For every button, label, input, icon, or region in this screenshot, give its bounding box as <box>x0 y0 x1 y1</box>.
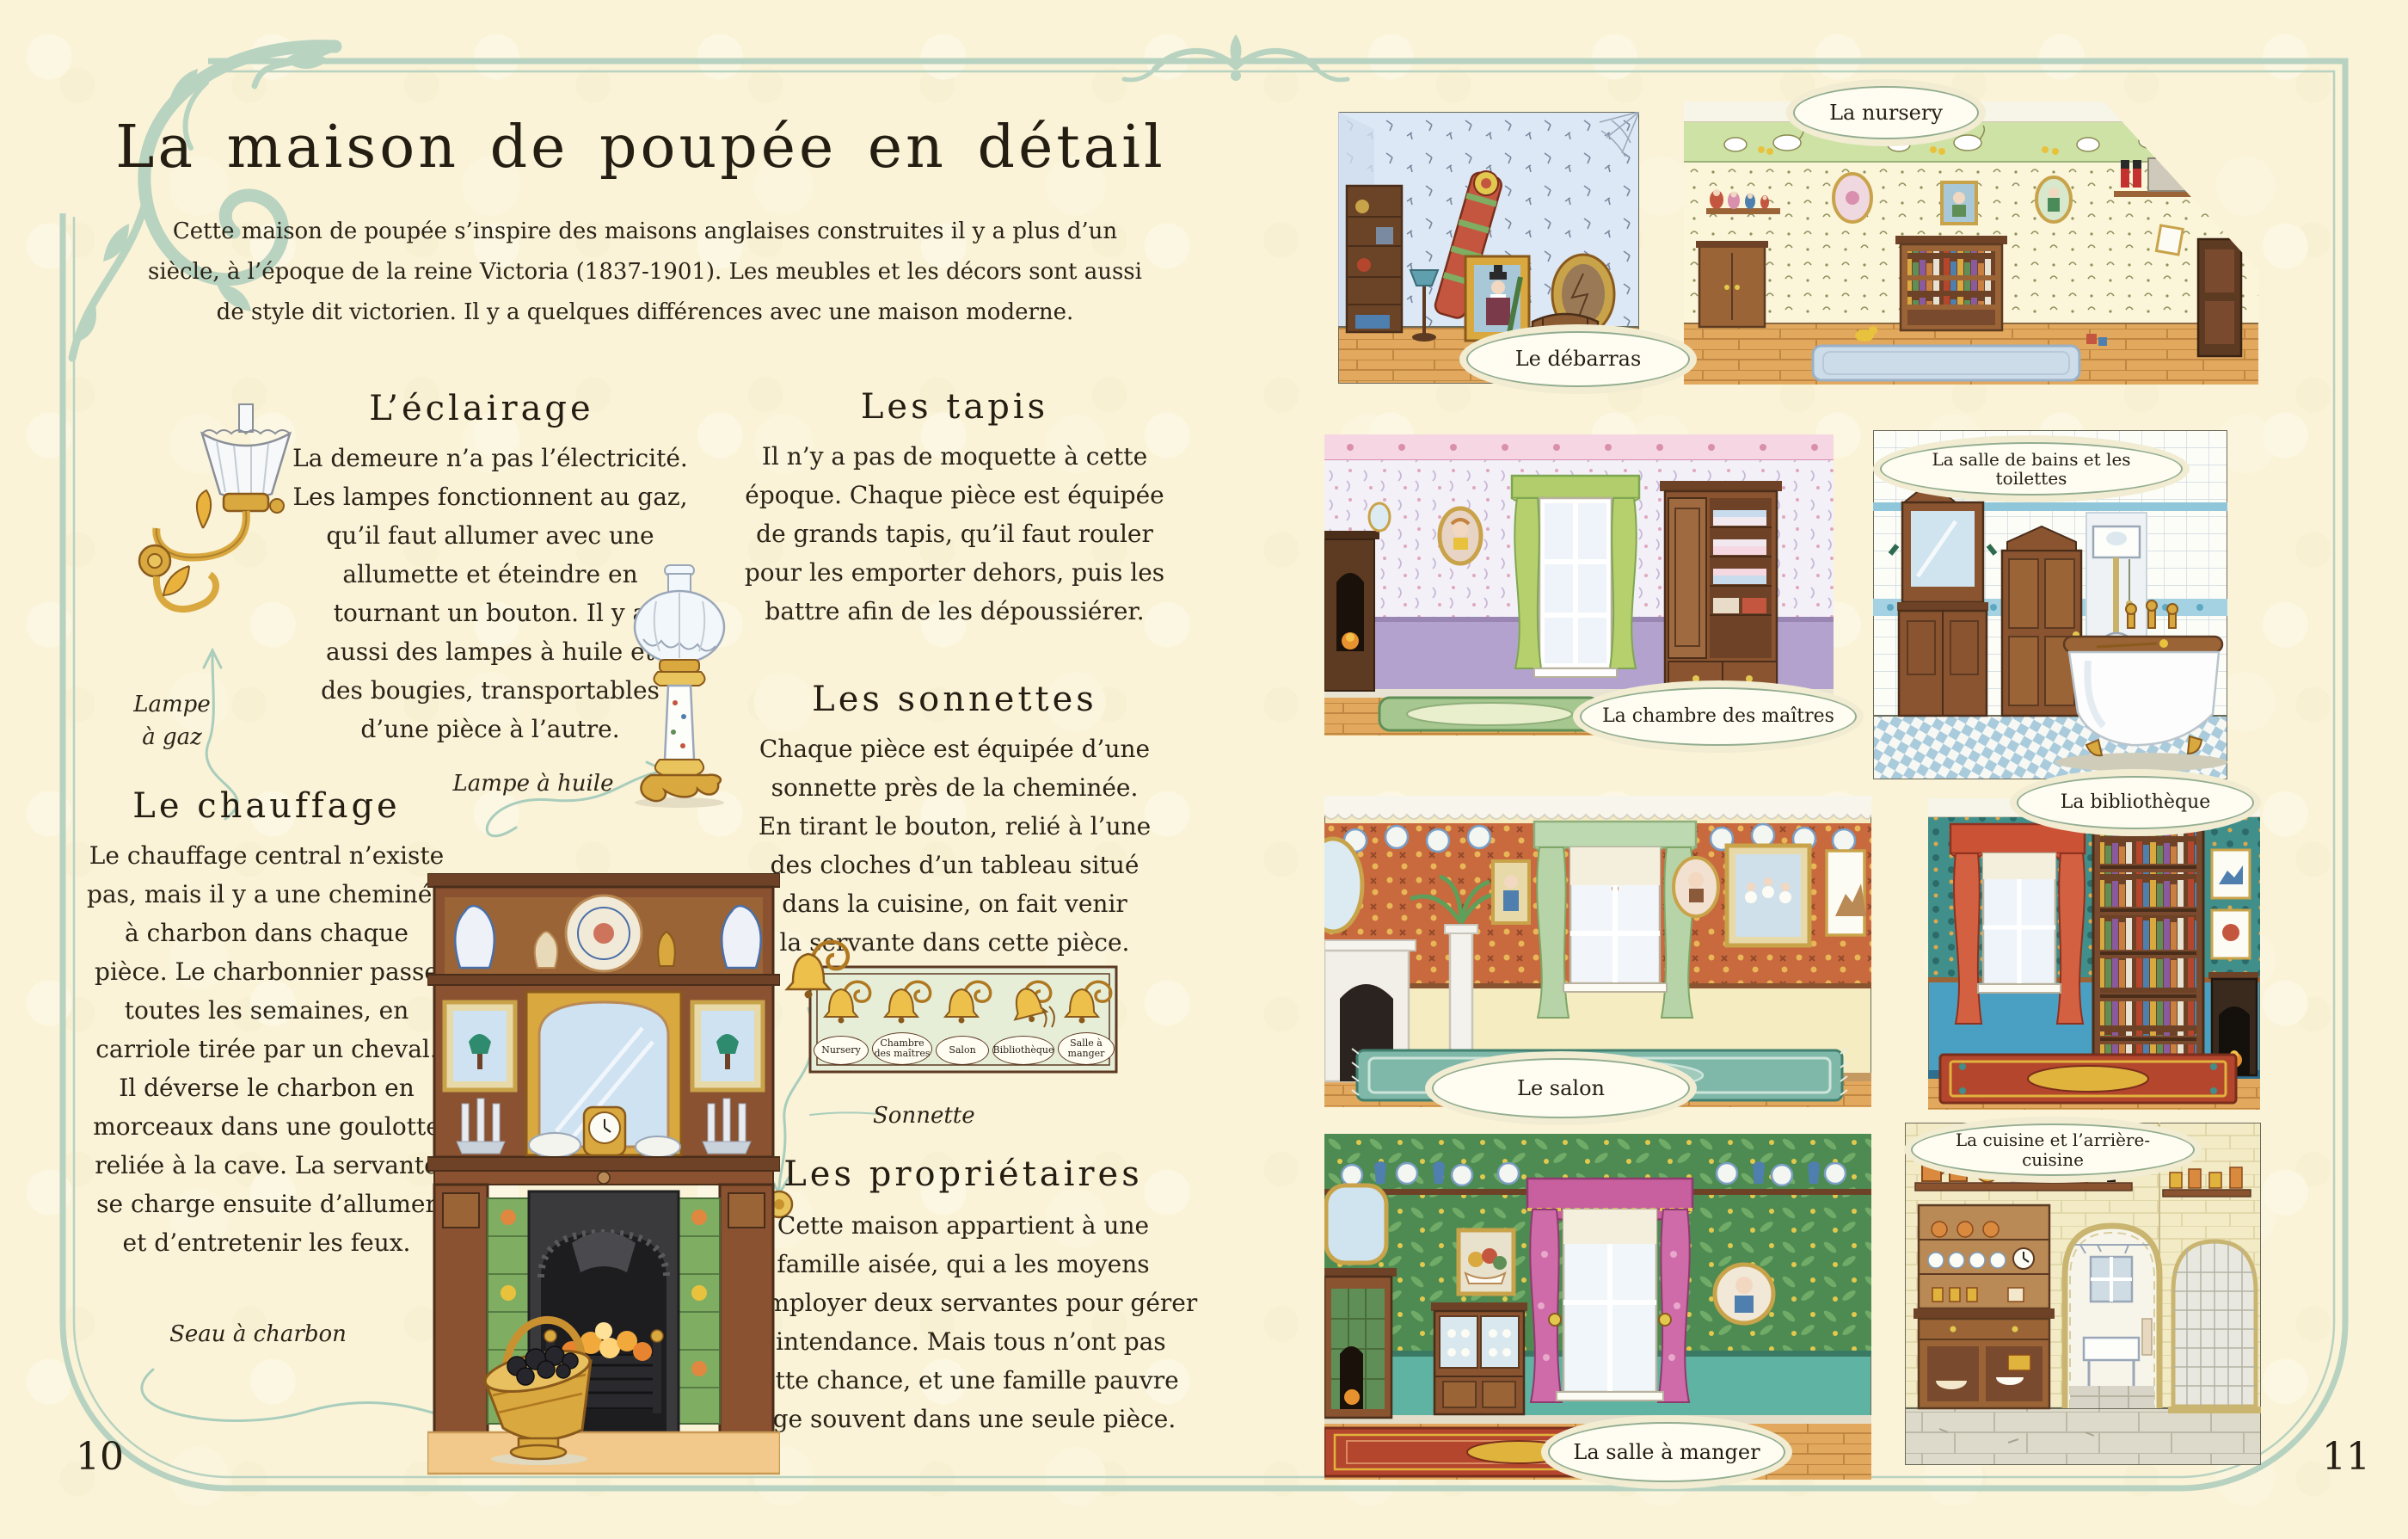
section-body-chauffage: Le chauffage central n’existe pas, mais … <box>77 836 456 1262</box>
bell-label-nursery: Nursery <box>814 1036 869 1065</box>
section-body-tapis: Il n’y a pas de moquette à cette époque.… <box>722 437 1187 631</box>
room-label-salle-a-manger: La salle à manger <box>1548 1422 1785 1482</box>
caption-coal-bucket: Seau à charbon <box>138 1318 378 1351</box>
bell-pull-illustration <box>774 938 856 1019</box>
section-heading-tapis: Les tapis <box>791 387 1118 427</box>
room-label-chambre: La chambre des maîtres <box>1580 687 1857 746</box>
caption-gas-lamp: Lampe à gaz <box>112 688 232 754</box>
book-spread: La maison de poupée en détail Cette mais… <box>0 0 2408 1539</box>
section-heading-sonnettes: Les sonnettes <box>774 680 1135 719</box>
room-illustration-bibliotheque <box>1928 798 2260 1110</box>
page-number-left: 10 <box>76 1435 124 1479</box>
section-heading-eclairage: L’éclairage <box>310 389 654 428</box>
section-heading-proprietaires: Les propriétaires <box>765 1154 1161 1194</box>
room-label-bibliotheque: La bibliothèque <box>2017 776 2254 829</box>
page-title: La maison de poupée en détail <box>112 114 1170 182</box>
room-label-salle-de-bains: La salle de bains et les toilettes <box>1880 442 2183 496</box>
bell-label-chambre: Chambre des maîtres <box>872 1032 932 1065</box>
oil-lamp-illustration <box>615 563 744 809</box>
section-body-proprietaires: Cette maison appartient à une famille ai… <box>714 1206 1213 1438</box>
room-label-debarras: Le débarras <box>1466 331 1690 387</box>
caption-bell-pull: Sonnette <box>873 1099 1028 1132</box>
caption-connector <box>810 1112 879 1115</box>
bell-label-salon: Salon <box>936 1036 989 1065</box>
section-body-sonnettes: Chaque pièce est équipée d’une sonnette … <box>722 729 1187 962</box>
coal-bucket-illustration <box>469 1282 606 1467</box>
gas-lamp-illustration <box>120 397 292 664</box>
room-label-nursery: La nursery <box>1793 86 1979 139</box>
page-number-right: 11 <box>2322 1435 2370 1479</box>
room-label-salon: Le salon <box>1432 1058 1690 1118</box>
intro-paragraph: Cette maison de poupée s’inspire des mai… <box>129 212 1161 333</box>
bell-label-bibliotheque: Bibliothèque <box>992 1036 1054 1065</box>
room-label-cuisine: La cuisine et l’arrière-cuisine <box>1911 1123 2195 1176</box>
caption-oil-lamp: Lampe à huile <box>439 767 628 800</box>
room-illustration-nursery <box>1684 102 2258 385</box>
bell-label-salle-a-manger: Salle à manger <box>1058 1032 1115 1065</box>
section-heading-chauffage: Le chauffage <box>99 786 434 826</box>
